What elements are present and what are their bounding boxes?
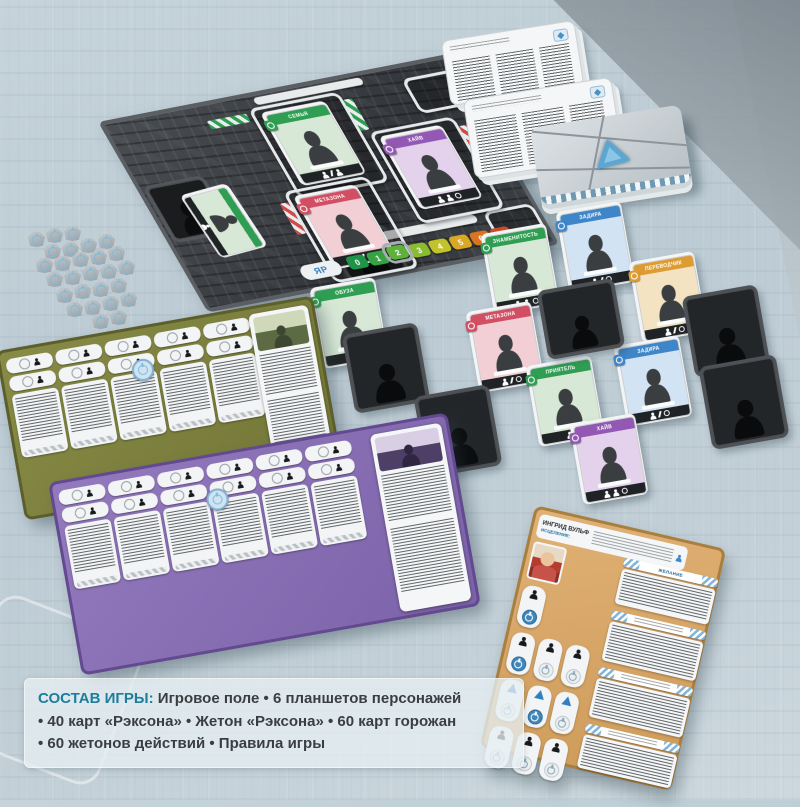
person-icon (529, 589, 539, 600)
circle-icon (219, 463, 232, 476)
circle-icon (169, 349, 182, 362)
card-text (314, 479, 362, 529)
power-button-icon (537, 661, 555, 679)
card-text (163, 365, 211, 415)
person-icon (334, 168, 344, 176)
power-icon (60, 291, 70, 301)
warning-triangle-icon (561, 695, 573, 706)
power-icon (78, 287, 88, 297)
power-icon (114, 281, 124, 291)
empty-card-tile (698, 354, 789, 450)
card-text (450, 37, 510, 52)
power-icon (86, 269, 96, 279)
action-slot (531, 637, 564, 683)
person-icon (184, 349, 191, 357)
faction-icon (628, 270, 641, 283)
power-icon (50, 231, 60, 241)
power-icon (96, 285, 106, 295)
action-slot (521, 684, 554, 730)
action-token (64, 270, 81, 285)
text-card (261, 484, 318, 555)
power-icon (104, 267, 114, 277)
action-slot (537, 737, 570, 783)
person-icon (237, 481, 244, 489)
card-portrait (562, 216, 631, 281)
card-portrait (304, 198, 389, 258)
person-icon (320, 171, 330, 179)
power-icon (102, 237, 112, 247)
power-button-icon (542, 761, 560, 779)
power-icon (124, 295, 134, 305)
action-token (120, 292, 137, 307)
person-icon (135, 480, 142, 488)
circle-icon (268, 454, 281, 467)
power-button-icon (526, 708, 544, 726)
stat-divider (330, 170, 333, 176)
circle-icon (74, 507, 87, 520)
power-icon (40, 261, 50, 271)
person-icon (286, 472, 293, 480)
card-text (265, 488, 313, 538)
person-icon (519, 636, 529, 647)
person-icon (83, 349, 90, 357)
circle-icon (18, 358, 31, 371)
faction-icon (555, 220, 568, 233)
text-card (113, 510, 170, 581)
person-icon (335, 463, 342, 471)
faction-icon (613, 354, 626, 367)
person-icon (86, 367, 93, 375)
components-banner: СОСТАВ ИГРЫ: Игровое поле • 6 планшетов … (24, 678, 524, 768)
empty-card-tile (537, 278, 626, 360)
action-slot (559, 643, 592, 689)
circle-icon (166, 331, 179, 344)
power-icon (68, 229, 78, 239)
faction-icon (480, 242, 493, 255)
banner-line-2: • 40 карт «Рэксона» • Жетон «Рэксона» • … (38, 711, 510, 734)
power-icon (122, 263, 132, 273)
citizen-card: ХАЙВ (569, 413, 648, 505)
card-text (474, 114, 524, 172)
power-button-icon (520, 608, 538, 626)
card-portrait (272, 114, 359, 174)
person-icon (188, 490, 195, 498)
text-card (64, 518, 121, 589)
card-text (114, 374, 162, 424)
text-card (11, 387, 68, 458)
character-portrait (526, 541, 568, 586)
circle-icon (218, 341, 231, 354)
circle-icon (271, 472, 284, 485)
action-token (110, 310, 127, 325)
power-icon (84, 241, 94, 251)
circle-icon (172, 489, 185, 502)
power-icon (106, 299, 116, 309)
power-icon (112, 249, 122, 259)
power-icon (68, 273, 78, 283)
circle-icon (120, 480, 133, 493)
person-icon (436, 195, 446, 203)
person-icon (676, 554, 683, 562)
power-icon (70, 305, 80, 315)
action-token (54, 256, 71, 271)
character-text (381, 465, 452, 523)
action-token (100, 264, 117, 279)
faction-icon (569, 432, 582, 445)
circle-icon (117, 340, 130, 353)
action-token (108, 246, 125, 261)
person-icon (86, 489, 93, 497)
header-text (591, 531, 674, 563)
action-token (84, 300, 101, 315)
power-icon (48, 247, 58, 257)
action-token (46, 272, 63, 287)
circle-icon (68, 349, 81, 362)
circle-icon (123, 498, 136, 511)
deck-striped-edge (541, 174, 692, 206)
action-token (36, 258, 53, 273)
person-icon (573, 649, 583, 660)
citizen-card: ЗАДИРА (555, 201, 634, 293)
circle-icon (120, 358, 133, 371)
action-token (118, 260, 135, 275)
text-card (159, 361, 216, 432)
power-icon (114, 313, 124, 323)
action-slot (548, 690, 581, 736)
diamond-icon (589, 85, 606, 99)
action-token (74, 284, 91, 299)
power-button-icon (564, 667, 582, 685)
card-portrait (390, 139, 475, 199)
action-slot-grid (5, 317, 266, 458)
power-icon (66, 245, 76, 255)
person-icon (181, 332, 188, 340)
card-text (212, 357, 260, 407)
action-token (28, 232, 45, 247)
character-text (259, 346, 317, 394)
character-portrait (253, 309, 310, 352)
action-token (110, 278, 127, 293)
circle-icon (320, 463, 333, 476)
person-icon (551, 742, 561, 753)
power-icon (76, 255, 86, 265)
person-icon (33, 358, 40, 366)
person-icon (546, 642, 556, 653)
action-token (46, 228, 63, 243)
slot-row (515, 584, 548, 630)
circle-icon (215, 323, 228, 336)
circle-icon (317, 446, 330, 459)
power-icon (32, 235, 42, 245)
citizen-card: ЗАДИРА (613, 335, 692, 427)
person-icon (138, 498, 145, 506)
card-text (472, 95, 542, 112)
card-portrait (620, 350, 689, 415)
power-icon (88, 303, 98, 313)
action-token (64, 226, 81, 241)
person-icon (184, 472, 191, 480)
text-card (162, 501, 219, 572)
person-icon (132, 340, 139, 348)
green-hazard-stripe (207, 114, 251, 130)
person-icon (37, 375, 44, 383)
banner-label: СОСТАВ ИГРЫ: (38, 690, 154, 707)
character-text (390, 518, 464, 592)
action-token (92, 282, 109, 297)
person-icon (445, 194, 455, 202)
faction-icon (525, 374, 538, 387)
text-card (61, 378, 118, 449)
power-button-icon (509, 655, 527, 673)
person-icon (524, 736, 534, 747)
power-button-icon (553, 714, 571, 732)
action-token (92, 314, 109, 329)
circle-icon (169, 472, 182, 485)
power-icon (94, 253, 104, 263)
character-portrait (374, 427, 443, 472)
action-token (102, 296, 119, 311)
circle-icon (71, 367, 84, 380)
person-icon (89, 507, 96, 515)
card-text (64, 383, 112, 433)
card-portrait (576, 428, 645, 493)
action-slot (515, 584, 548, 630)
banner-line-1: Игровое поле • 6 планшетов персонажей (158, 690, 461, 707)
action-token (82, 266, 99, 281)
card-text (117, 514, 165, 564)
person-icon (234, 463, 241, 471)
green-hazard-stripe (343, 98, 370, 131)
person-icon (230, 323, 237, 331)
action-token (66, 302, 83, 317)
person-icon (283, 454, 290, 462)
person-icon (233, 341, 240, 349)
card-text (68, 523, 116, 573)
action-token (90, 250, 107, 265)
text-card (310, 475, 367, 546)
diamond-icon (552, 28, 569, 42)
circle-icon (21, 375, 34, 388)
circle-icon (71, 489, 84, 502)
power-icon (96, 317, 106, 327)
action-slot (504, 630, 537, 676)
faction-icon (465, 320, 478, 333)
banner-line-3: • 60 жетонов действий • Правила игры (38, 733, 510, 756)
card-text (15, 391, 63, 441)
power-icon (50, 275, 60, 285)
warning-triangle-icon (534, 689, 546, 700)
stat-circle-icon (454, 192, 463, 199)
triangle-gem-icon (591, 135, 631, 169)
person-icon (332, 446, 339, 454)
action-token (56, 288, 73, 303)
card-text (166, 505, 214, 555)
power-icon (58, 259, 68, 269)
